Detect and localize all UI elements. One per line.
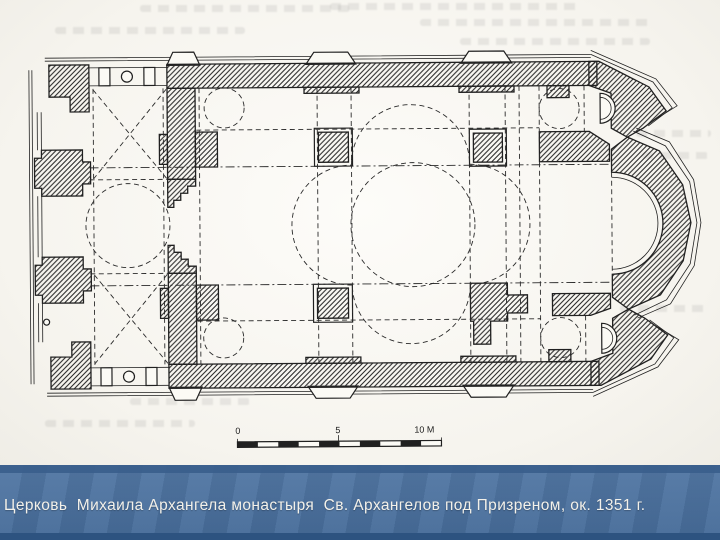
prothesis-divider xyxy=(539,131,609,161)
south-wall xyxy=(169,355,599,388)
scanned-page: 0 5 10 M xyxy=(0,0,720,465)
colonnette xyxy=(123,371,134,382)
west-facade xyxy=(34,65,92,389)
narthex-dome-circle xyxy=(86,183,171,268)
caption-bar: Церковь Михаила Архангела монастыря Св. … xyxy=(0,465,720,540)
north-arch xyxy=(351,104,469,164)
north-wall xyxy=(167,61,597,94)
northeast-pier xyxy=(469,129,506,166)
main-apse-wall xyxy=(611,137,691,310)
caption-bar-top-strip xyxy=(0,465,720,473)
narthex-south-wall xyxy=(91,367,169,386)
central-dome-circle xyxy=(351,162,476,287)
east-end xyxy=(539,61,692,386)
scale-bar: 0 5 10 M xyxy=(235,424,441,447)
caption-text: Церковь Михаила Архангела монастыря Св. … xyxy=(4,497,718,515)
diaconicon-divider xyxy=(552,293,610,315)
stair-steps xyxy=(168,179,196,207)
church-floor-plan: 0 5 10 M xyxy=(0,0,720,468)
corner-bay-dome xyxy=(204,88,244,128)
scale-label-0: 0 xyxy=(235,426,240,436)
scale-label-10m: 10 M xyxy=(414,424,434,434)
south-arch xyxy=(352,284,470,344)
slide: 0 5 10 M Церковь Михаила Архангела монас… xyxy=(0,0,720,540)
east-arch xyxy=(470,164,531,284)
naos-piers xyxy=(312,127,528,345)
corner-bay-dome xyxy=(204,318,244,358)
caption-bar-bottom-strip xyxy=(0,533,720,540)
scale-label-5: 5 xyxy=(335,425,340,435)
southeast-cross-pier xyxy=(470,283,527,344)
stair-steps xyxy=(168,245,196,273)
southwest-pier xyxy=(313,284,352,322)
colonnette xyxy=(121,71,132,82)
buttresses xyxy=(167,50,514,400)
narthex-cross-vault xyxy=(93,89,168,364)
narthex-north-wall xyxy=(89,67,167,86)
northwest-pier xyxy=(314,128,352,166)
west-arch xyxy=(292,165,353,285)
